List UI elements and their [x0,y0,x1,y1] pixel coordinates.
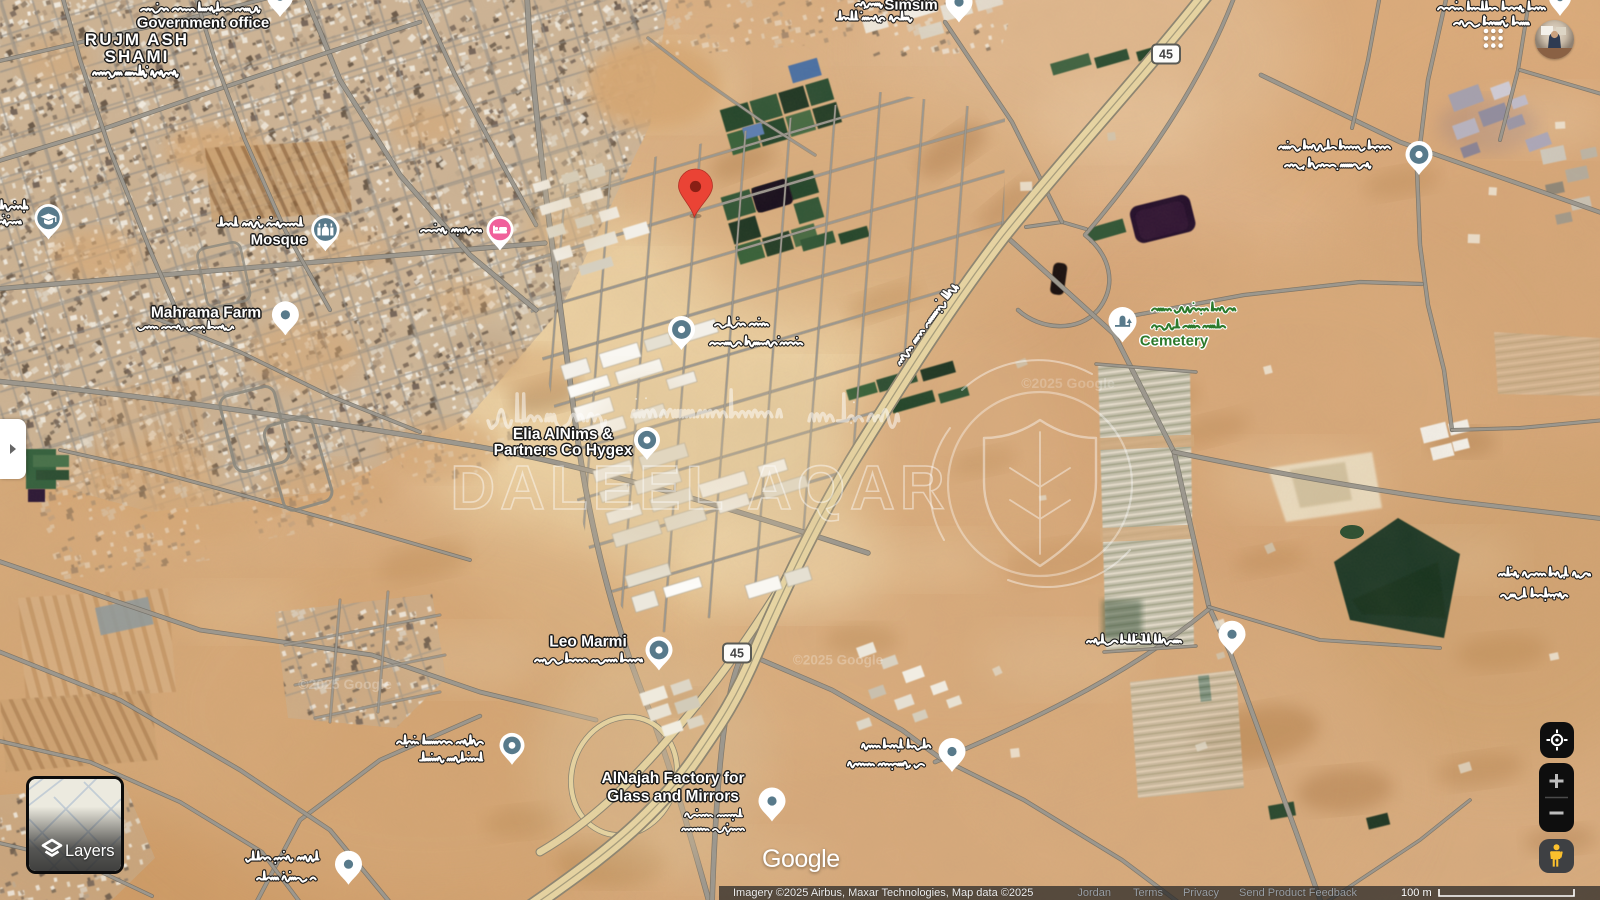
svg-text:DALEEL AQAR: DALEEL AQAR [450,454,949,523]
